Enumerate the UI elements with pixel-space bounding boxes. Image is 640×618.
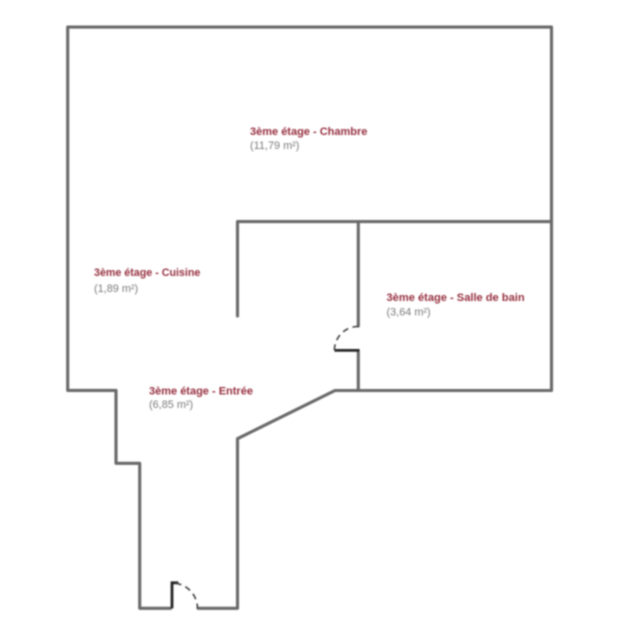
svg-text:3ème étage - Cuisine: 3ème étage - Cuisine bbox=[94, 267, 200, 279]
svg-text:3ème étage - Salle de bain: 3ème étage - Salle de bain bbox=[387, 292, 525, 304]
svg-text:(6,85 m²): (6,85 m²) bbox=[149, 399, 193, 411]
svg-text:(11,79 m²): (11,79 m²) bbox=[250, 140, 299, 152]
svg-text:3ème étage - Entrée: 3ème étage - Entrée bbox=[149, 385, 253, 397]
svg-text:3ème étage - Chambre: 3ème étage - Chambre bbox=[250, 126, 367, 138]
svg-text:(1,89 m²): (1,89 m²) bbox=[94, 283, 138, 295]
svg-text:(3,64 m²): (3,64 m²) bbox=[387, 307, 431, 319]
